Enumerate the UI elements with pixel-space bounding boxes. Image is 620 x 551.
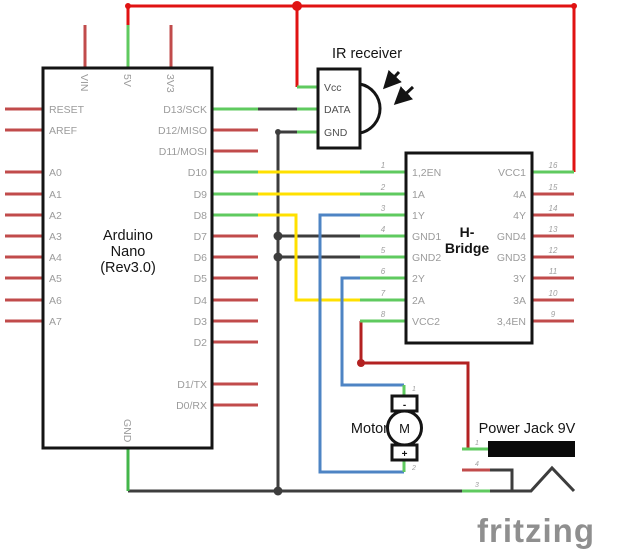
junction-red-top-bus xyxy=(292,1,302,11)
ir-signal-arrow-2 xyxy=(396,87,413,103)
junction-gnd2 xyxy=(274,253,283,262)
hb-label-gnd4: GND4 xyxy=(497,231,526,243)
motor-minus: - xyxy=(403,400,406,411)
bend-darkred xyxy=(357,359,365,367)
pin-label-a5: A5 xyxy=(49,273,62,285)
bend-red-topright xyxy=(571,3,577,9)
hb-pinnum-12: 12 xyxy=(549,246,558,255)
pin-label-d4: D4 xyxy=(194,295,208,307)
ir-title: IR receiver xyxy=(332,46,402,62)
hbridge-title-line2: Bridge xyxy=(445,240,490,256)
ir-pin-vcc: Vcc xyxy=(324,82,342,94)
pin-label-a1: A1 xyxy=(49,189,62,201)
motor-symbol: M xyxy=(399,421,410,436)
ir-receiver: Vcc DATA GND IR receiver xyxy=(297,46,413,148)
pin-label-d11: D11/MOSI xyxy=(159,146,207,158)
bend-red-topleft xyxy=(125,3,131,9)
pin-label-reset: RESET xyxy=(49,104,85,116)
jack-barrel xyxy=(488,441,575,457)
hb-label-4y: 4Y xyxy=(513,210,526,222)
hb-pinnum-13: 13 xyxy=(549,225,558,234)
pin-label-d1tx: D1/TX xyxy=(177,379,207,391)
wire-2y-to-motor-top xyxy=(342,278,404,385)
wire-jack-pin4 xyxy=(490,470,512,491)
fritzing-watermark: fritzing xyxy=(477,512,595,549)
hb-pinnum-9: 9 xyxy=(551,310,556,319)
hb-label-vcc2: VCC2 xyxy=(412,316,440,328)
pin-label-d9: D9 xyxy=(194,189,208,201)
hb-label-1a: 1A xyxy=(412,189,425,201)
motor-pinnum-1: 1 xyxy=(412,386,416,393)
arduino-right-pin-stubs xyxy=(212,109,258,405)
hb-pinnum-7: 7 xyxy=(381,289,386,298)
ir-signal-arrow-1 xyxy=(385,72,399,87)
hb-label-2y: 2Y xyxy=(412,273,425,285)
hb-pinnum-5: 5 xyxy=(381,246,386,255)
ir-pin-data: DATA xyxy=(324,104,350,116)
pin-label-d5: D5 xyxy=(194,273,208,285)
pin-label-d7: D7 xyxy=(194,231,208,243)
hb-label-gnd2: GND2 xyxy=(412,252,441,264)
hb-pinnum-8: 8 xyxy=(381,310,386,319)
hb-pinnum-2: 2 xyxy=(380,183,386,192)
hb-pinnum-10: 10 xyxy=(549,289,558,298)
hb-pinnum-1: 1 xyxy=(381,161,385,170)
pin-label-a4: A4 xyxy=(49,252,62,264)
hb-label-3y: 3Y xyxy=(513,273,526,285)
jack-pinnum-4: 4 xyxy=(475,461,479,468)
arduino-title-line1: Arduino xyxy=(103,228,153,244)
hb-label-4a: 4A xyxy=(513,189,526,201)
pin-label-vin: VIN xyxy=(78,74,90,92)
hb-label-34en: 3,4EN xyxy=(497,316,526,328)
bend-black-ir-gnd xyxy=(275,129,281,135)
hbridge-title-line1: H- xyxy=(460,224,475,240)
hb-pinnum-3: 3 xyxy=(381,204,386,213)
pin-label-a3: A3 xyxy=(49,231,62,243)
wire-ir-gnd-to-ground-bus xyxy=(278,132,297,491)
hb-pinnum-4: 4 xyxy=(381,225,386,234)
jack-pinnum-3: 3 xyxy=(475,482,479,489)
pin-label-a0: A0 xyxy=(49,167,62,179)
hb-pinnum-15: 15 xyxy=(549,183,558,192)
pin-label-d2: D2 xyxy=(194,337,208,349)
ir-lens-dome xyxy=(360,84,380,133)
pin-label-a6: A6 xyxy=(49,295,62,307)
hb-label-vcc1: VCC1 xyxy=(498,167,526,179)
pin-label-d12: D12/MISO xyxy=(158,125,207,137)
hb-pinnum-11: 11 xyxy=(549,267,557,276)
hb-pinnum-6: 6 xyxy=(381,267,386,276)
pin-label-a2: A2 xyxy=(49,210,62,222)
schematic-canvas: Arduino Nano (Rev3.0) RESET AREF A0 A1 A… xyxy=(0,0,620,551)
hb-label-3a: 3A xyxy=(513,295,526,307)
motor: - + M 1 2 Motor xyxy=(351,385,422,472)
ir-pin-gnd: GND xyxy=(324,127,348,139)
motor-plus: + xyxy=(402,449,408,460)
pin-label-d13: D13/SCK xyxy=(163,104,207,116)
hb-label-1y: 1Y xyxy=(412,210,425,222)
pin-label-3v3: 3V3 xyxy=(164,74,176,93)
pin-label-d3: D3 xyxy=(194,316,208,328)
motor-title: Motor xyxy=(351,421,388,437)
arduino-nano: Arduino Nano (Rev3.0) RESET AREF A0 A1 A… xyxy=(5,25,258,448)
pin-label-aref: AREF xyxy=(49,125,77,137)
hb-label-12en: 1,2EN xyxy=(412,167,441,179)
pin-label-d6: D6 xyxy=(194,252,208,264)
pin-label-d10: D10 xyxy=(188,167,207,179)
hb-pinnum-16: 16 xyxy=(549,161,558,170)
arduino-left-pin-stubs xyxy=(5,109,43,321)
pin-label-5v: 5V xyxy=(121,74,133,87)
h-bridge: H- Bridge 1,2EN 1A 1Y GND1 GND2 2Y 2A VC… xyxy=(360,153,574,343)
pin-label-d8: D8 xyxy=(194,210,208,222)
pin-label-gnd: GND xyxy=(121,419,133,443)
arduino-title-line2: Nano xyxy=(111,244,146,260)
pin-label-a7: A7 xyxy=(49,316,62,328)
hb-label-gnd1: GND1 xyxy=(412,231,441,243)
jack-pinnum-1: 1 xyxy=(475,440,479,447)
motor-pinnum-2: 2 xyxy=(411,465,416,472)
hb-pinnum-14: 14 xyxy=(549,204,558,213)
junction-gnd1 xyxy=(274,232,283,241)
pin-label-d0rx: D0/RX xyxy=(176,400,207,412)
hb-label-gnd3: GND3 xyxy=(497,252,526,264)
junction-ground-bus xyxy=(274,487,283,496)
hb-label-2a: 2A xyxy=(412,295,425,307)
power-jack: 1 4 3 Power Jack 9V xyxy=(462,421,576,491)
arduino-title-line3: (Rev3.0) xyxy=(100,260,156,276)
power-jack-title: Power Jack 9V xyxy=(479,421,576,437)
